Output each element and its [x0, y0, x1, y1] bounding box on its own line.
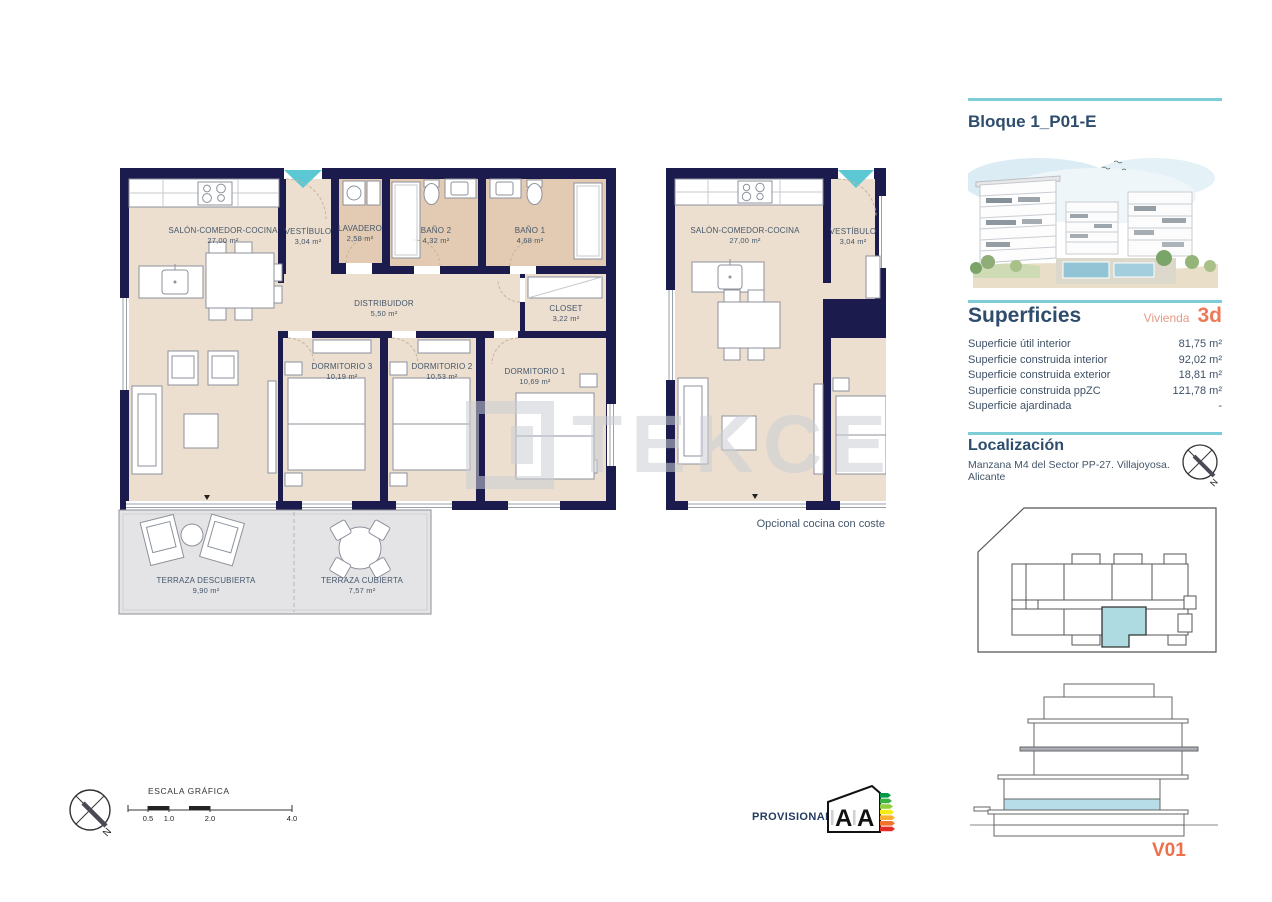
optional-floor-plan: SALÓN-COMEDOR-COCINA27,00 m² VESTÍBULO3,…	[660, 166, 886, 518]
energy-scale-bars	[880, 793, 895, 831]
room-label-closet: CLOSET3,22 m²	[549, 304, 582, 324]
svg-text:N: N	[101, 826, 114, 839]
unit-code: 3d	[1197, 304, 1222, 328]
teal-divider-localizacion	[968, 432, 1222, 435]
room-label-salon: SALÓN-COMEDOR-COCINA27,00 m²	[168, 226, 277, 246]
building-left	[976, 176, 1060, 263]
version-label: V01	[1152, 840, 1186, 862]
room-label-vestibulo: VESTÍBULO3,04 m²	[285, 227, 332, 247]
table-row: Superficie ajardinada-	[968, 399, 1222, 415]
terrace	[119, 510, 431, 614]
room-label-lavadero: LAVADERO2,58 m²	[338, 224, 382, 244]
room-label-dormitorio1: DORMITORIO 110,69 m²	[505, 367, 566, 387]
table-row: Superficie construida interior92,02 m²	[968, 353, 1222, 369]
room-label-bano2: BAÑO 24,32 m²	[421, 226, 452, 246]
room-label-dormitorio2: DORMITORIO 210,53 m²	[412, 362, 473, 382]
building-right	[1128, 192, 1192, 256]
scale-title: ESCALA GRÁFICA	[148, 786, 230, 796]
table-row: Superficie útil interior81,75 m²	[968, 337, 1222, 353]
svg-text:4.0: 4.0	[287, 814, 297, 823]
north-compass-icon: N	[66, 786, 120, 840]
building-illustration	[968, 150, 1222, 290]
optional-plan-caption: Opcional cocina con coste	[713, 518, 885, 530]
svg-text:N: N	[1208, 477, 1220, 489]
room-label-distribuidor: DISTRIBUIDOR5,50 m²	[354, 299, 414, 319]
energy-rating-icon: A A	[822, 780, 896, 844]
graphic-scale-bar: 0.5 1.0 2.0 4.0	[126, 800, 302, 824]
svg-text:1.0: 1.0	[164, 814, 174, 823]
optional-plan-drawing	[660, 166, 886, 518]
site-plan	[968, 496, 1222, 666]
vivienda-label: Vivienda	[1144, 311, 1190, 325]
north-compass-icon: N	[1180, 442, 1224, 490]
main-floor-plan: SALÓN-COMEDOR-COCINA27,00 m² VESTÍBULO3,…	[118, 166, 620, 618]
info-sidebar: Bloque 1_P01-E	[968, 90, 1222, 892]
superficies-heading: Superficies	[968, 304, 1081, 328]
provisional-label: PROVISIONAL	[752, 811, 832, 823]
building-section	[968, 676, 1222, 838]
svg-text:2.0: 2.0	[205, 814, 215, 823]
table-row: Superficie construida ppZC121,78 m²	[968, 384, 1222, 400]
teal-divider-superficies	[968, 300, 1222, 303]
svg-text:A: A	[835, 805, 852, 832]
svg-text:0.5: 0.5	[143, 814, 153, 823]
block-title: Bloque 1_P01-E	[968, 112, 1097, 132]
localizacion-address: Manzana M4 del Sector PP-27. Villajoyosa…	[968, 459, 1176, 483]
room-label-vestibulo-opcional: VESTÍBULO3,04 m²	[830, 227, 877, 247]
room-label-bano1: BAÑO 14,68 m²	[515, 226, 546, 246]
table-row: Superficie construida exterior18,81 m²	[968, 368, 1222, 384]
superficies-table: Superficie útil interior81,75 m² Superfi…	[968, 337, 1222, 415]
svg-text:A: A	[857, 805, 874, 832]
teal-divider-top	[968, 98, 1222, 101]
building-middle	[1066, 202, 1118, 254]
room-label-salon-opcional: SALÓN-COMEDOR-COCINA27,00 m²	[690, 226, 799, 246]
room-label-terraza-cubierta: TERRAZA CUBIERTA7,57 m²	[321, 576, 403, 596]
room-label-terraza-descubierta: TERRAZA DESCUBIERTA9,90 m²	[156, 576, 255, 596]
room-label-dormitorio3: DORMITORIO 310,19 m²	[312, 362, 373, 382]
